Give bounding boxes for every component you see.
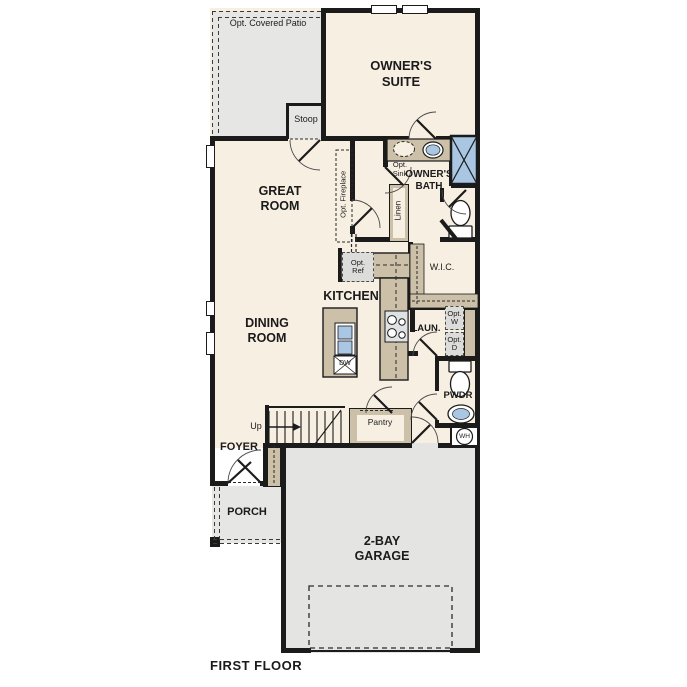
cooktop bbox=[385, 311, 408, 342]
plan-graphics bbox=[0, 0, 687, 687]
laundry-door-leaf bbox=[420, 339, 437, 356]
pwdr-label: PWDR bbox=[438, 391, 478, 402]
window-dining-2 bbox=[206, 332, 215, 355]
linen-label: Linen bbox=[393, 186, 402, 236]
laundry-label: LAUN. bbox=[406, 324, 446, 335]
stairs bbox=[265, 407, 345, 444]
plan-title: FIRST FLOOR bbox=[210, 659, 320, 674]
opt-washer-label: Opt. W bbox=[447, 310, 461, 327]
front-door-leaf-b bbox=[228, 462, 251, 483]
opt-fireplace-label: Opt. Fireplace bbox=[340, 158, 349, 230]
garage-entry-door-leaf bbox=[412, 425, 430, 443]
optional-sink bbox=[394, 142, 415, 157]
great-room-label: GREAT ROOM bbox=[230, 184, 330, 214]
suite-door-leaf bbox=[417, 120, 436, 139]
bath-vanity bbox=[387, 139, 451, 161]
greatroom-hall-door-leaf bbox=[352, 208, 372, 228]
opt-ref-box: Opt. Ref bbox=[342, 252, 374, 282]
patio-label: Opt. Covered Patio bbox=[213, 18, 323, 28]
owners-suite-label: OWNER'S SUITE bbox=[341, 58, 461, 90]
opt-washer-box: Opt. W bbox=[445, 306, 464, 330]
wic-shelves bbox=[410, 244, 478, 308]
dw-label: DW bbox=[334, 360, 356, 368]
window-suite-2 bbox=[402, 5, 428, 14]
window-greatroom bbox=[206, 145, 215, 168]
kitchen-label: KITCHEN bbox=[311, 289, 391, 303]
stoop-door-leaf bbox=[299, 140, 320, 161]
porch-label: PORCH bbox=[212, 506, 282, 519]
pwdr-sink bbox=[448, 405, 474, 423]
window-suite-1 bbox=[371, 5, 397, 14]
up-label: Up bbox=[246, 421, 266, 431]
garage-door-dashed bbox=[309, 586, 452, 648]
garage-label: 2-BAY GARAGE bbox=[322, 534, 442, 564]
pantry-label: Pantry bbox=[350, 418, 410, 428]
window-dining-1 bbox=[206, 301, 215, 316]
foyer-label: FOYER bbox=[209, 441, 269, 454]
wic-label: W.I.C. bbox=[412, 262, 472, 272]
owners-bath-label: OWNER'S BATH bbox=[394, 169, 464, 192]
opt-ref-label: Opt. Ref bbox=[351, 259, 365, 276]
wh-label: WH bbox=[452, 433, 477, 440]
stoop-label: Stoop bbox=[286, 114, 326, 124]
floor-plan: Opt. Ref Opt. W Opt. D Opt. Covered Pati… bbox=[0, 0, 687, 687]
pwdr-door-leaf bbox=[419, 402, 437, 420]
opt-dryer-box: Opt. D bbox=[445, 332, 464, 356]
dining-room-label: DINING ROOM bbox=[217, 316, 317, 346]
stair-break-line bbox=[315, 410, 341, 444]
opt-dryer-label: Opt. D bbox=[447, 336, 461, 353]
